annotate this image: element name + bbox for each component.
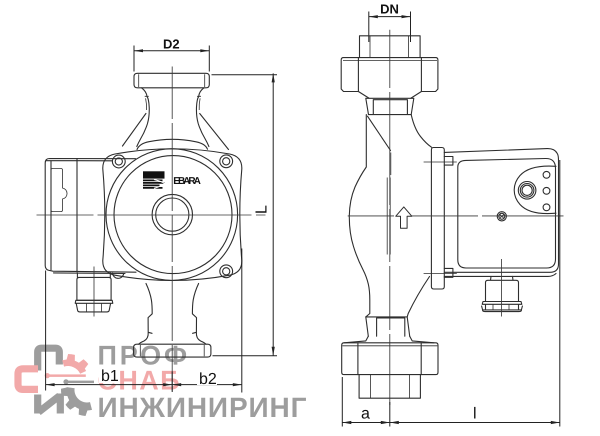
- svg-text:DN: DN: [380, 2, 399, 17]
- svg-text:l: l: [473, 406, 477, 423]
- svg-text:b1: b1: [101, 368, 119, 385]
- svg-text:EBARA: EBARA: [173, 176, 201, 187]
- svg-text:D2: D2: [163, 37, 180, 52]
- svg-text:ИНЖИНИРИНГ: ИНЖИНИРИНГ: [98, 392, 307, 423]
- svg-text:b2: b2: [199, 371, 217, 388]
- svg-text:a: a: [361, 406, 370, 423]
- svg-text:L: L: [254, 205, 271, 214]
